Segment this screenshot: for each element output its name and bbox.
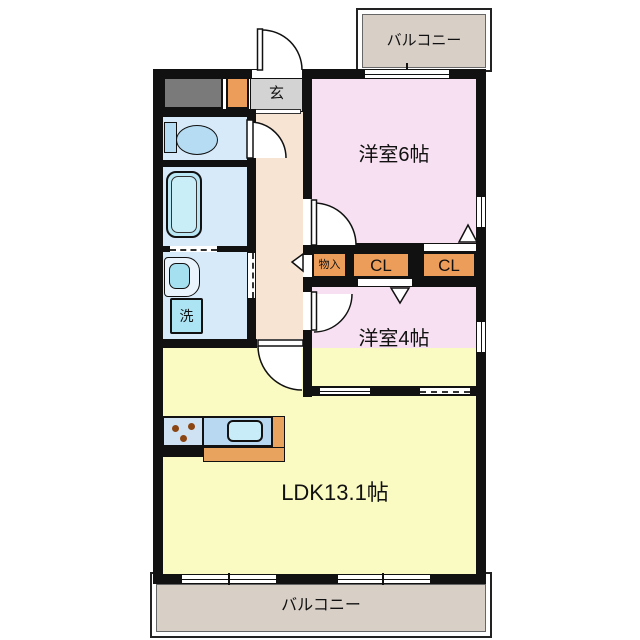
ldk-label: LDK13.1帖 [200, 477, 470, 509]
storage-door-marker [292, 254, 303, 271]
entrance-door-leaf [258, 29, 263, 70]
floor-plan: バルコニー 物入 CL CL [0, 0, 640, 640]
western6-door-leaf [312, 200, 317, 245]
balcony-bottom-label: バルコニー [156, 592, 486, 620]
ldk-door-leaf [258, 340, 303, 346]
toilet-door-leaf [247, 120, 253, 158]
western4-label: 洋室4帖 [312, 324, 476, 354]
door-swings-layer [0, 0, 640, 640]
entrance-label: 玄 [255, 80, 298, 106]
closet-b-door-marker [459, 225, 477, 242]
western6-label: 洋室6帖 [312, 140, 476, 170]
closet-a-door-marker [391, 288, 409, 303]
